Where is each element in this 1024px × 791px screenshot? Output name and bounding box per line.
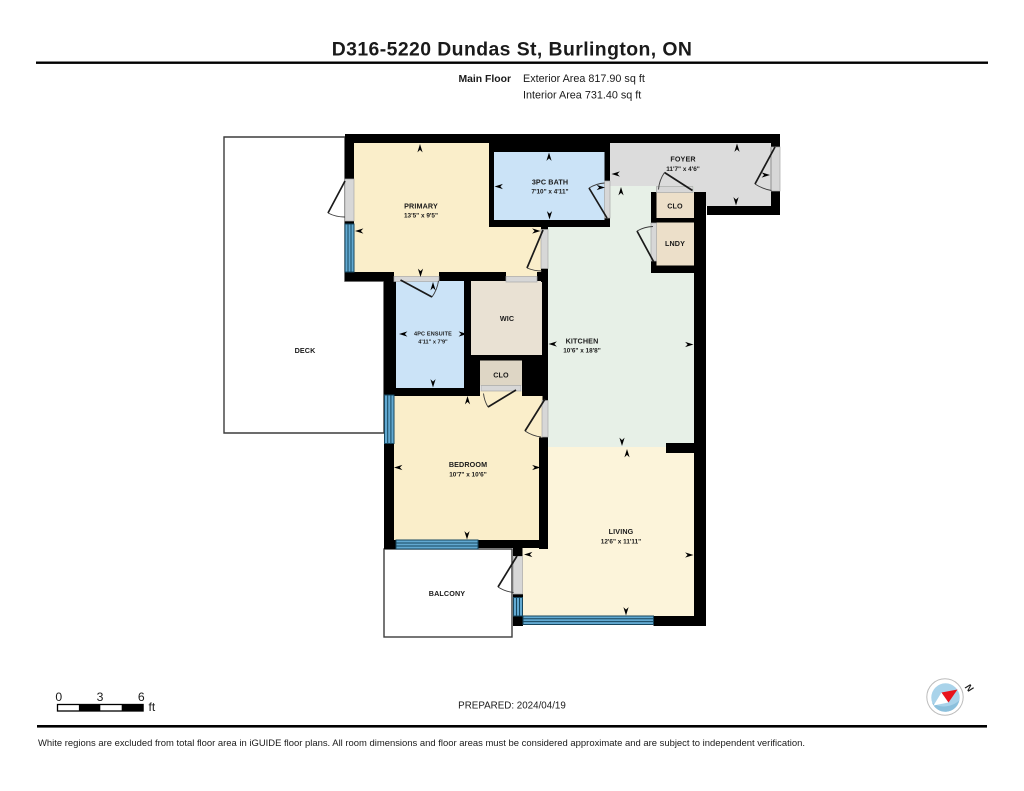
svg-text:D316-5220 Dundas St, Burlingto: D316-5220 Dundas St, Burlington, ON (332, 39, 693, 61)
svg-text:Exterior Area 817.90 sq ft: Exterior Area 817.90 sq ft (523, 73, 645, 85)
svg-text:3PC BATH: 3PC BATH (532, 178, 568, 187)
svg-text:7'10" x 4'11": 7'10" x 4'11" (531, 189, 568, 196)
svg-text:DECK: DECK (295, 346, 317, 355)
svg-text:3: 3 (97, 690, 104, 704)
svg-text:12'6" x 11'11": 12'6" x 11'11" (601, 539, 641, 546)
svg-text:White regions are excluded fro: White regions are excluded from total fl… (38, 738, 805, 749)
svg-text:Interior Area 731.40 sq ft: Interior Area 731.40 sq ft (523, 90, 641, 102)
svg-text:LIVING: LIVING (609, 527, 634, 536)
svg-text:LNDY: LNDY (665, 239, 685, 248)
svg-text:4PC ENSUITE: 4PC ENSUITE (414, 332, 452, 338)
svg-text:11'7" x 4'6": 11'7" x 4'6" (666, 166, 700, 173)
svg-text:CLO: CLO (667, 202, 683, 211)
svg-text:Main Floor: Main Floor (458, 74, 511, 85)
svg-text:CLO: CLO (493, 371, 509, 380)
svg-text:PREPARED: 2024/04/19: PREPARED: 2024/04/19 (458, 701, 566, 712)
svg-text:ft: ft (149, 700, 156, 714)
svg-text:6: 6 (138, 690, 145, 704)
svg-text:BEDROOM: BEDROOM (449, 460, 487, 469)
svg-text:10'7" x 10'6": 10'7" x 10'6" (449, 472, 487, 479)
svg-text:KITCHEN: KITCHEN (566, 337, 599, 346)
svg-text:13'5" x 9'5": 13'5" x 9'5" (404, 213, 438, 220)
svg-text:WIC: WIC (500, 314, 514, 323)
svg-text:FOYER: FOYER (670, 155, 696, 164)
svg-text:10'6" x 18'8": 10'6" x 18'8" (563, 348, 601, 355)
svg-text:PRIMARY: PRIMARY (404, 202, 438, 211)
svg-text:4'11" x 7'9": 4'11" x 7'9" (418, 340, 448, 346)
svg-text:0: 0 (55, 690, 62, 704)
svg-text:BALCONY: BALCONY (429, 589, 465, 598)
